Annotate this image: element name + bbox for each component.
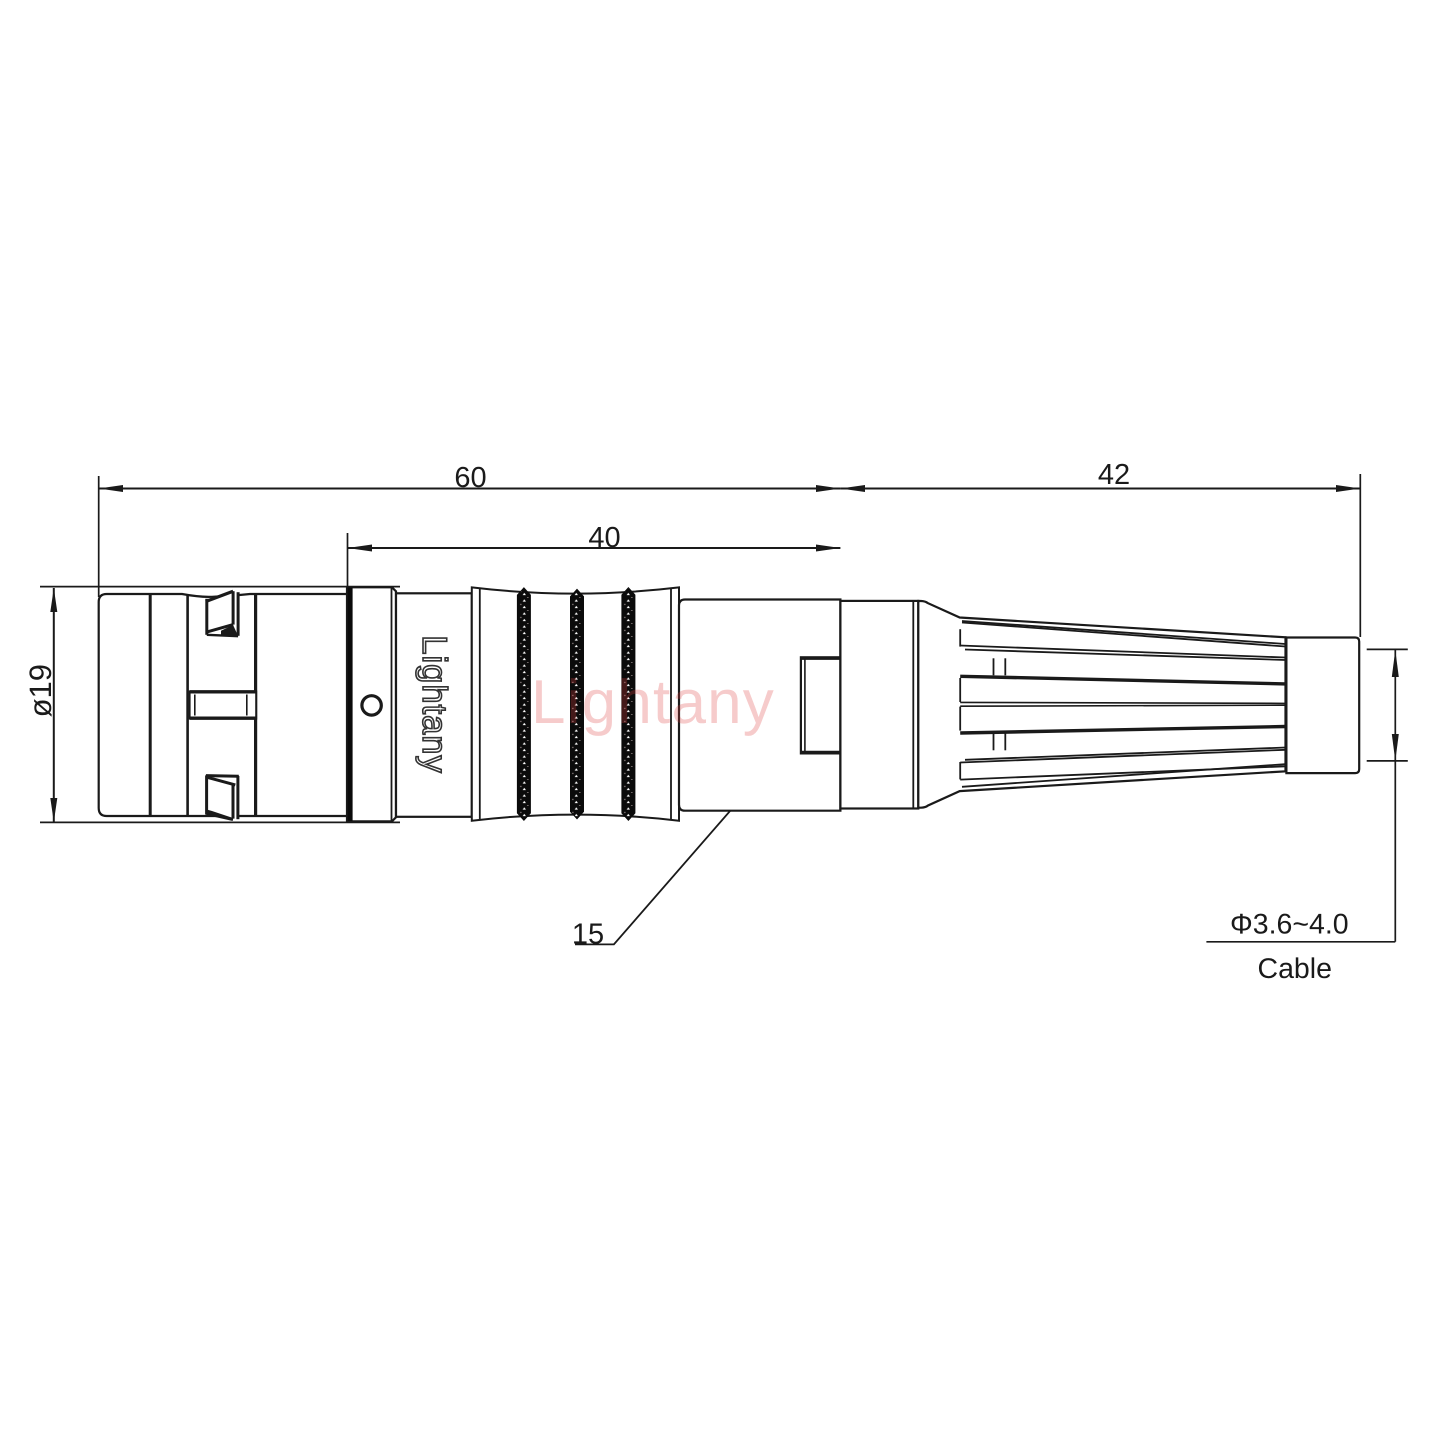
svg-text:40: 40	[588, 522, 620, 554]
svg-text:Lightany: Lightany	[531, 668, 775, 737]
svg-text:42: 42	[1098, 459, 1130, 491]
svg-text:ø19: ø19	[23, 664, 58, 717]
svg-text:Cable: Cable	[1258, 953, 1332, 985]
svg-text:15: 15	[572, 919, 604, 951]
svg-text:Lightany: Lightany	[415, 635, 453, 773]
svg-text:60: 60	[454, 462, 486, 494]
svg-text:Φ3.6~4.0: Φ3.6~4.0	[1230, 909, 1349, 941]
